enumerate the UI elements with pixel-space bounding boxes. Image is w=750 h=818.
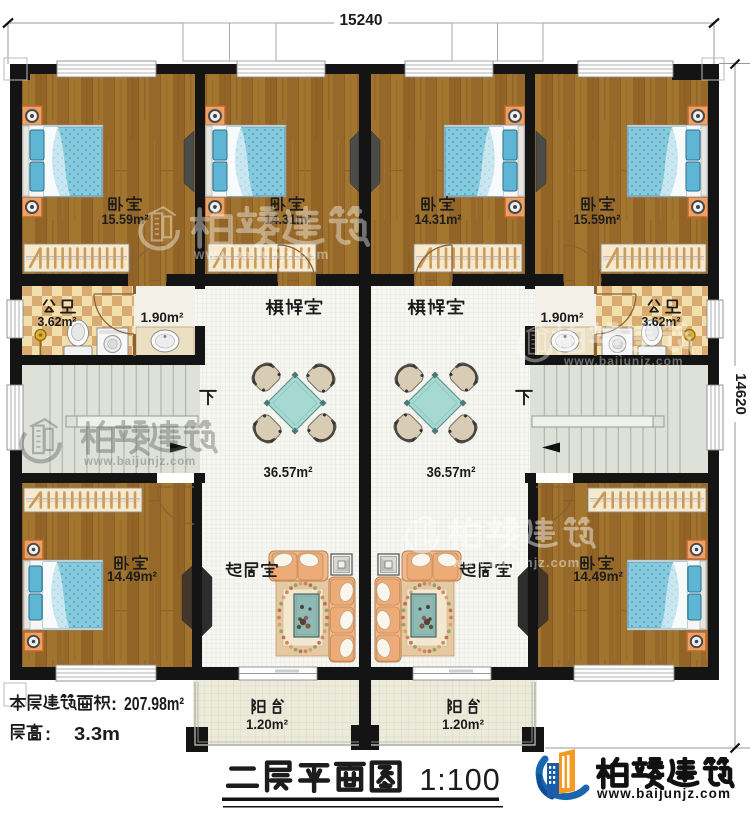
svg-text:1:100: 1:100	[419, 763, 500, 797]
svg-text:www.baijunjz.com: www.baijunjz.com	[563, 354, 684, 368]
svg-text:36.57m²: 36.57m²	[264, 464, 313, 481]
svg-text:www.baijunjz.com: www.baijunjz.com	[596, 786, 731, 801]
svg-text:36.57m²: 36.57m²	[427, 464, 476, 481]
svg-text:14.49m²: 14.49m²	[573, 568, 623, 584]
svg-text:www.baijunjz.com: www.baijunjz.com	[193, 247, 330, 262]
svg-text:www.baijunjz.com: www.baijunjz.com	[83, 456, 196, 468]
svg-text:14620: 14620	[732, 373, 749, 415]
svg-text:14.49m²: 14.49m²	[107, 568, 157, 584]
svg-text:1.90m²: 1.90m²	[541, 310, 584, 325]
svg-text:14.31m²: 14.31m²	[415, 211, 462, 227]
svg-text:3.3m: 3.3m	[74, 724, 120, 744]
svg-text:1.20m²: 1.20m²	[246, 717, 288, 732]
svg-text::: :	[111, 694, 117, 714]
svg-text:207.98m²: 207.98m²	[124, 694, 184, 714]
svg-text:www.baijunjz.com: www.baijunjz.com	[451, 555, 580, 570]
svg-text::: :	[45, 724, 51, 744]
svg-text:3.62m²: 3.62m²	[38, 314, 78, 329]
svg-text:15.59m²: 15.59m²	[574, 211, 621, 227]
svg-text:15240: 15240	[339, 12, 382, 29]
svg-text:1.90m²: 1.90m²	[141, 310, 184, 325]
svg-text:1.20m²: 1.20m²	[442, 717, 484, 732]
